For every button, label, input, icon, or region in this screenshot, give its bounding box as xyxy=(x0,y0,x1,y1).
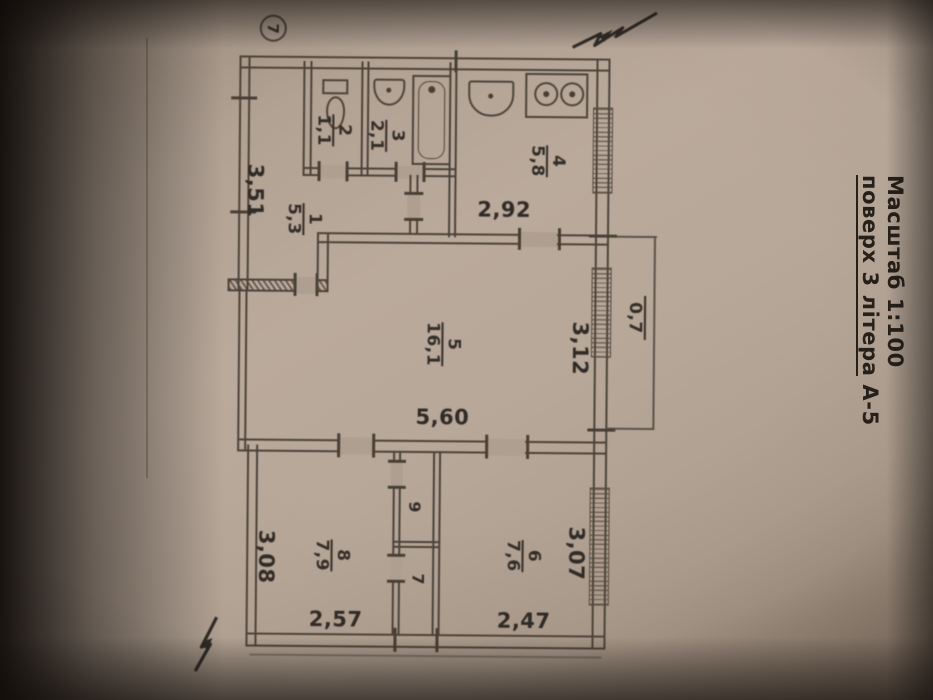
door-tick xyxy=(485,435,488,459)
floor-slab-line xyxy=(249,654,601,659)
floor-letter-underlined: поверх 3 літера xyxy=(856,175,882,376)
wall-closet-divider xyxy=(392,541,440,548)
bathtub-drain xyxy=(428,86,435,93)
door-tick xyxy=(293,273,296,296)
door-tick xyxy=(526,435,529,459)
door-tick xyxy=(345,161,348,181)
burner-dot-right xyxy=(569,91,575,97)
room-area: 2,1 xyxy=(366,120,385,152)
window-kitchen xyxy=(592,108,613,194)
dimension-2-57: 2,57 xyxy=(309,607,363,631)
kitchen-sink-tap xyxy=(488,94,493,99)
room-label-4: 4 5,8 xyxy=(527,145,566,177)
door-opening-wc xyxy=(320,165,345,178)
dimension-3-12: 3,12 xyxy=(568,321,592,375)
dim-tick xyxy=(589,234,617,237)
door-tick xyxy=(387,580,405,583)
door-tick xyxy=(404,192,423,195)
dimension-2-47: 2,47 xyxy=(497,609,551,633)
balcony-area: 0,7 xyxy=(625,296,644,340)
wall-hall-right xyxy=(303,61,313,176)
scale-text: Масштаб 1:100 xyxy=(882,175,907,485)
break-symbol-bottom-icon xyxy=(182,603,243,679)
room-number: 2 xyxy=(332,114,353,146)
room-number: 3 xyxy=(385,120,406,152)
room-label-5: 5 16,1 xyxy=(423,322,462,366)
door-tick xyxy=(372,434,375,458)
apartment-number-badge: 7 xyxy=(260,15,287,42)
toilet-tank-fixture xyxy=(322,79,348,94)
door-opening-closet9 xyxy=(391,462,403,486)
door-tick xyxy=(388,486,406,489)
room-number: 5 xyxy=(441,322,462,366)
floor-plan: 7 1 5,3 2 1,1 3 2,1 4 5,8 5 16 xyxy=(0,0,933,700)
door-tick xyxy=(388,460,406,463)
door-tick xyxy=(387,554,405,557)
door-opening-kitchen xyxy=(407,194,420,219)
wall-outer-top xyxy=(239,55,610,71)
room-label-1: 1 5,3 xyxy=(284,203,323,235)
room-number: 6 xyxy=(521,540,542,572)
room-area: 5,3 xyxy=(284,203,303,235)
building-letter: А-5 xyxy=(858,384,882,425)
room-number: 4 xyxy=(546,145,567,177)
door-tick xyxy=(558,228,561,250)
room-label-6: 6 7,6 xyxy=(503,540,542,572)
wall-outer-bottom xyxy=(245,632,605,649)
photo-stage: 7 1 5,3 2 1,1 3 2,1 4 5,8 5 16 xyxy=(0,0,933,700)
wall-living-top xyxy=(317,232,609,246)
dimension-3-08: 3,08 xyxy=(254,530,278,584)
room-number: 1 xyxy=(302,203,323,235)
door-opening-hall xyxy=(296,277,316,294)
washbasin-tap xyxy=(386,88,391,93)
balcony-label: 0,7 xyxy=(625,296,647,340)
room-area: 7,9 xyxy=(312,539,331,571)
dimension-3-07: 3,07 xyxy=(564,526,588,580)
door-tick xyxy=(317,161,320,181)
break-symbol-top-icon xyxy=(561,3,671,59)
door-opening-living xyxy=(521,232,557,247)
door-opening-room6 xyxy=(488,439,525,456)
title-block: Масштаб 1:100 поверх 3 літера А-5 xyxy=(853,175,907,485)
balcony-rail-right xyxy=(652,236,656,430)
room-label-7: 7 xyxy=(408,573,427,584)
wall-outer-left-mid xyxy=(237,288,247,451)
door-tick xyxy=(404,218,423,221)
room-label-8: 8 7,9 xyxy=(312,539,351,571)
apartment-number: 7 xyxy=(264,23,282,34)
dimension-5-60: 5,60 xyxy=(415,405,469,429)
door-tick xyxy=(337,433,340,457)
door-tick xyxy=(518,228,521,250)
door-opening-room8 xyxy=(340,437,372,454)
dim-tick xyxy=(454,50,457,72)
wall-wc-bath xyxy=(361,61,370,174)
room-area: 1,1 xyxy=(313,114,332,146)
room-number: 8 xyxy=(330,539,351,571)
window-living-room xyxy=(591,267,612,357)
room-area: 5,8 xyxy=(527,145,546,177)
dim-tick xyxy=(393,628,396,652)
room-area: 16,1 xyxy=(423,322,442,366)
dim-tick xyxy=(435,628,438,652)
dimension-2-92: 2,92 xyxy=(477,197,531,221)
dim-tick xyxy=(231,96,257,99)
floor-letter-text: поверх 3 літера А-5 xyxy=(857,175,882,485)
room-label-2: 2 1,1 xyxy=(313,114,352,146)
window-room6 xyxy=(589,487,610,605)
burner-dot-left xyxy=(543,91,549,97)
room-label-9: 9 xyxy=(405,501,424,512)
kitchen-sink-fixture xyxy=(468,80,514,116)
wall-mid-slab xyxy=(237,438,607,454)
door-tick xyxy=(394,162,397,182)
door-opening-closet7 xyxy=(390,556,402,580)
dimension-3-51: 3,51 xyxy=(243,164,267,218)
room-label-3: 3 2,1 xyxy=(366,120,405,152)
room-area: 7,6 xyxy=(503,540,522,572)
dim-tick xyxy=(587,428,615,431)
